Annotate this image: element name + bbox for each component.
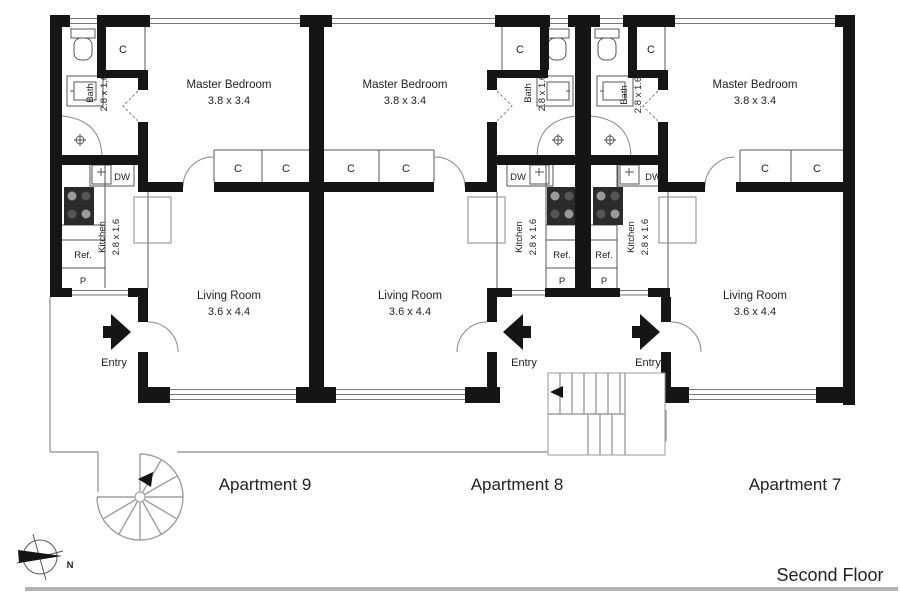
- kitchen-label: Kitchen: [626, 221, 637, 253]
- living-room-label: Living Room: [723, 290, 787, 302]
- interior-partitions: [62, 27, 843, 288]
- toilet-icon: [595, 29, 619, 60]
- shower-icon: [591, 116, 631, 158]
- apartment-name: Apartment 8: [471, 475, 564, 494]
- pantry-label: P: [80, 276, 86, 287]
- bath-label: Bath: [619, 85, 630, 105]
- entry-label: Entry: [511, 357, 537, 369]
- entry-label: Entry: [635, 357, 661, 369]
- bottom-divider: [25, 587, 898, 591]
- spiral-staircase: [97, 454, 183, 540]
- master-bedroom-dims: 3.8 x 3.4: [384, 95, 426, 107]
- living-room-dims: 3.6 x 4.4: [389, 306, 431, 318]
- living-room-dims: 3.6 x 4.4: [734, 306, 776, 318]
- closet-label: C: [813, 163, 821, 175]
- refrigerator-label: Ref.: [74, 250, 91, 261]
- entry-arrow-icon: [103, 314, 131, 350]
- apartment-8-labels: C Master Bedroom 3.8 x 3.4 Bath 2.8 x 1.…: [347, 44, 571, 369]
- closet-label: C: [516, 44, 524, 56]
- pantry-label: P: [601, 276, 607, 287]
- apartment-7-labels: C Master Bedroom 3.8 x 3.4 Bath 2.8 x 1.…: [595, 44, 821, 369]
- shower-icon: [537, 116, 577, 158]
- staircase: [548, 373, 665, 455]
- master-bedroom-label: Master Bedroom: [362, 79, 447, 91]
- compass-icon: N: [17, 534, 74, 580]
- bath-dims: 2.8 x 1.6: [537, 75, 548, 111]
- stove-icon: [593, 187, 623, 225]
- pantry-label: P: [559, 276, 565, 287]
- entry-arrow-icon: [503, 314, 531, 350]
- master-bedroom-label: Master Bedroom: [186, 79, 271, 91]
- closet-label: C: [761, 163, 769, 175]
- floor-title: Second Floor: [776, 565, 883, 585]
- closet-label: C: [402, 163, 410, 175]
- entry-arrow-icon: [632, 314, 660, 350]
- apartment-name: Apartment 7: [749, 475, 842, 494]
- closet-label: C: [647, 44, 655, 56]
- apartment-9-labels: C Master Bedroom 3.8 x 3.4 Bath 2.8 x 1.…: [74, 44, 290, 369]
- master-bedroom-dims: 3.8 x 3.4: [208, 95, 250, 107]
- kitchen-label: Kitchen: [97, 221, 108, 253]
- compass-north-label: N: [67, 560, 74, 571]
- windows: [68, 19, 835, 400]
- master-bedroom-label: Master Bedroom: [712, 79, 797, 91]
- entry-arrows: [103, 314, 660, 350]
- bath-dims: 2.8 x 1.6: [633, 77, 644, 113]
- entry-label: Entry: [101, 357, 127, 369]
- toilet-icon: [71, 29, 95, 60]
- stove-icon: [64, 187, 94, 225]
- refrigerator-label: Ref.: [595, 250, 612, 261]
- kitchen-dims: 2.8 x 1.6: [640, 219, 651, 255]
- bath-label: Bath: [523, 83, 534, 103]
- floor-plan-drawing: N C Master Bedroom 3.8 x 3.4 Bath 2.8 x …: [0, 0, 900, 593]
- shower-icon: [62, 116, 102, 158]
- closet-label: C: [234, 163, 242, 175]
- closet-label: C: [347, 163, 355, 175]
- kitchen-dims: 2.8 x 1.6: [111, 219, 122, 255]
- stove-icon: [547, 187, 577, 225]
- bath-dims: 2.8 x 1.6: [99, 75, 110, 111]
- bath-label: Bath: [85, 83, 96, 103]
- living-room-label: Living Room: [197, 290, 261, 302]
- refrigerator-label: Ref.: [553, 250, 570, 261]
- dishwasher-label: DW: [510, 172, 526, 183]
- kitchen-label: Kitchen: [514, 221, 525, 253]
- closet-label: C: [282, 163, 290, 175]
- dishwasher-label: DW: [114, 172, 130, 183]
- closet-label: C: [119, 44, 127, 56]
- floor-plan-page: N C Master Bedroom 3.8 x 3.4 Bath 2.8 x …: [0, 0, 900, 593]
- living-room-label: Living Room: [378, 290, 442, 302]
- apartment-name: Apartment 9: [219, 475, 312, 494]
- kitchen-dims: 2.8 x 1.6: [528, 219, 539, 255]
- dishwasher-label: DW: [645, 172, 661, 183]
- living-room-dims: 3.6 x 4.4: [208, 306, 250, 318]
- master-bedroom-dims: 3.8 x 3.4: [734, 95, 776, 107]
